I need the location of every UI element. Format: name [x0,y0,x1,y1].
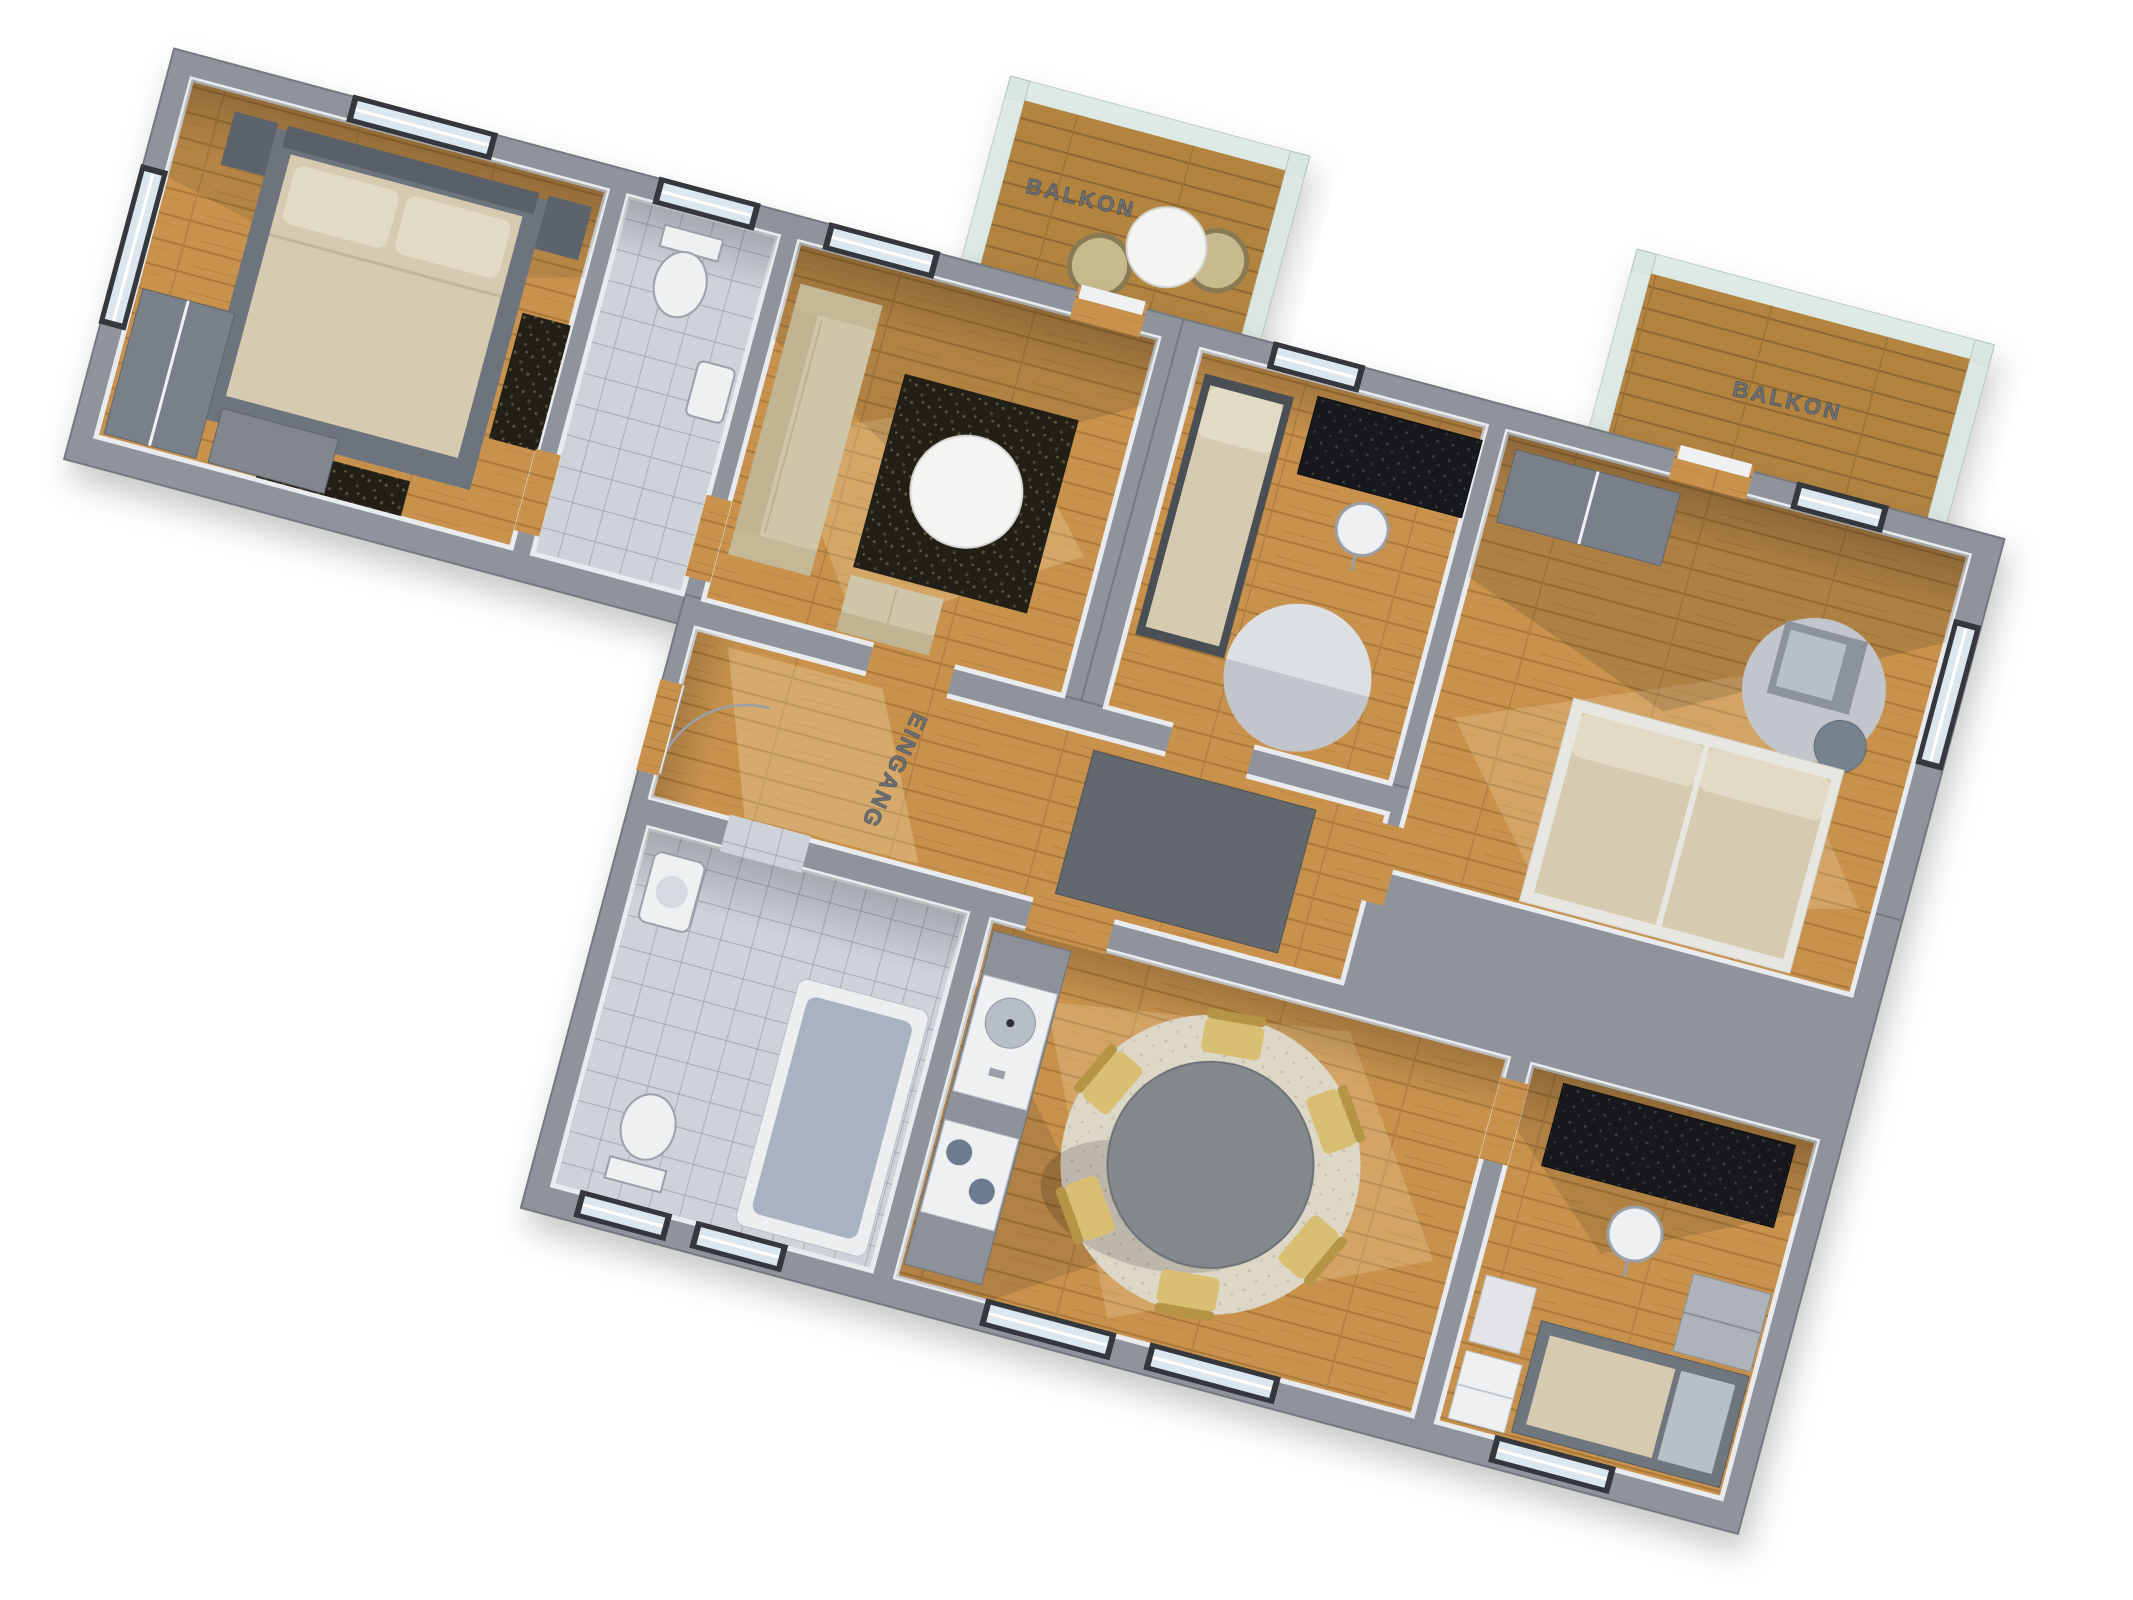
floorplan-canvas: BALKON BALKON [0,0,2133,1600]
floorplan-render: BALKON BALKON [0,0,2133,1600]
rotated-plan: BALKON BALKON [0,0,2054,1534]
